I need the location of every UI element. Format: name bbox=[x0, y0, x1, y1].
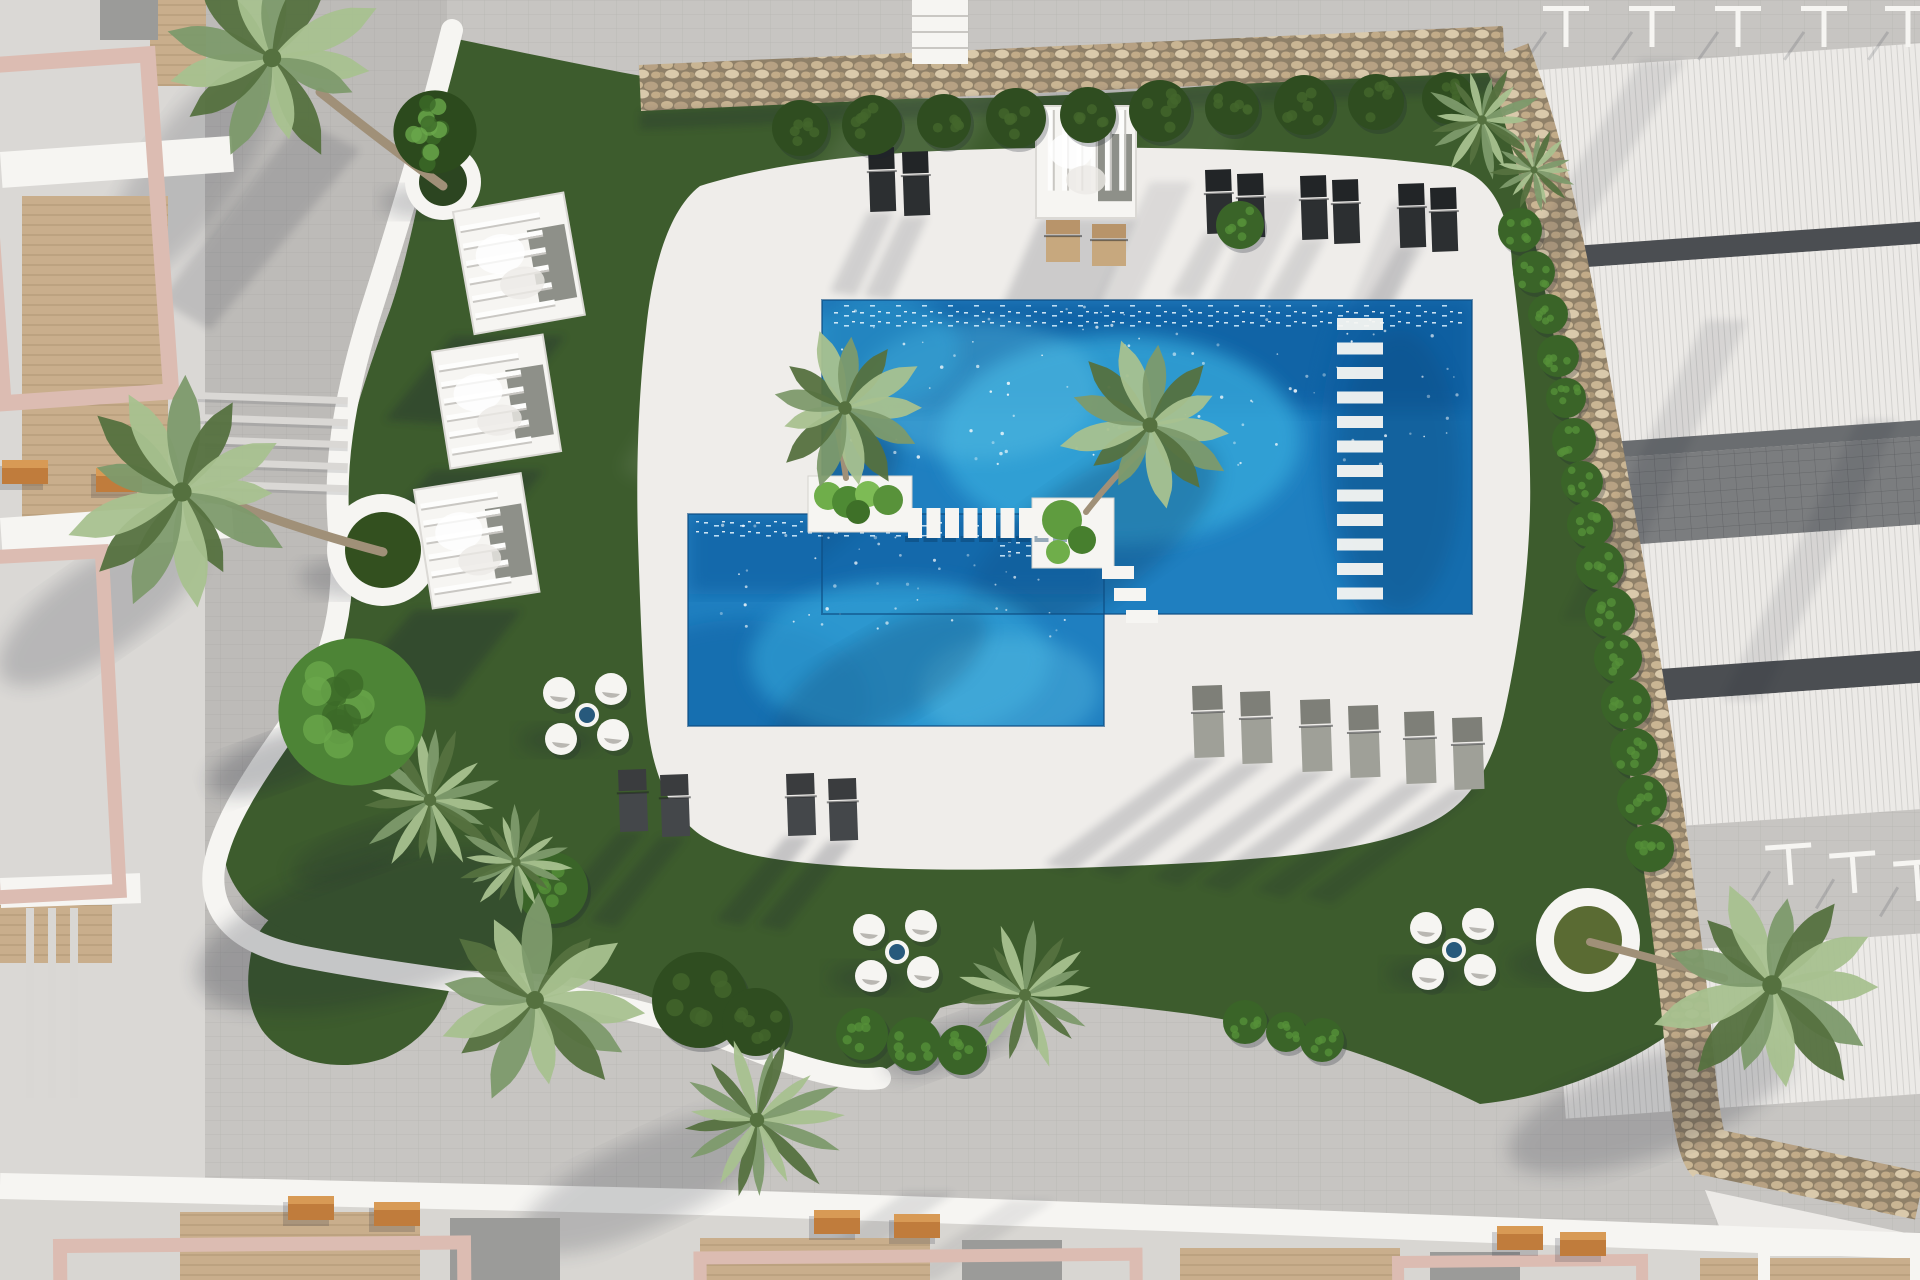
tree bbox=[278, 638, 425, 785]
pool-step bbox=[1337, 318, 1383, 330]
pergola bbox=[432, 334, 561, 468]
stepping-stone bbox=[964, 508, 978, 538]
stepping-stone bbox=[927, 508, 941, 538]
pool-step bbox=[1337, 441, 1383, 453]
terrace-recess bbox=[100, 0, 158, 40]
stepping-stone bbox=[1019, 508, 1033, 538]
sun-lounger bbox=[900, 151, 932, 216]
sun-lounger bbox=[1238, 691, 1274, 764]
top-stair bbox=[912, 0, 968, 64]
sun-lounger bbox=[1428, 187, 1460, 252]
sun-lounger bbox=[1190, 685, 1226, 758]
pool-step bbox=[1337, 343, 1383, 355]
pergola bbox=[414, 473, 539, 608]
sun-lounger bbox=[1396, 183, 1428, 248]
wood-bench bbox=[283, 1196, 334, 1226]
pool-step bbox=[1337, 367, 1383, 379]
sun-lounger bbox=[784, 773, 818, 836]
sun-lounger bbox=[1298, 175, 1330, 240]
sun-lounger bbox=[1450, 717, 1486, 790]
wood-bench bbox=[809, 1210, 860, 1240]
pool-step bbox=[1337, 416, 1383, 428]
pool-step bbox=[1337, 563, 1383, 575]
pool-step bbox=[1337, 514, 1383, 526]
wood-bench bbox=[1555, 1232, 1606, 1262]
wood-bench bbox=[889, 1214, 940, 1244]
stepping-stone bbox=[982, 508, 996, 538]
sun-lounger bbox=[1346, 705, 1382, 778]
pool-step bbox=[1337, 539, 1383, 551]
pergola bbox=[453, 193, 585, 335]
scene-canvas: Aerial 3D render of residential courtyar… bbox=[0, 0, 1920, 1280]
wood-bench bbox=[0, 460, 48, 490]
sun-lounger bbox=[658, 774, 692, 837]
wood-bench bbox=[1492, 1226, 1543, 1256]
pool-step bbox=[1337, 490, 1383, 502]
tree bbox=[393, 90, 476, 173]
wood-bench bbox=[369, 1202, 420, 1232]
pool-step bbox=[1337, 465, 1383, 477]
sun-lounger bbox=[1402, 711, 1438, 784]
stepping-stone bbox=[908, 508, 922, 538]
sun-lounger bbox=[1298, 699, 1334, 772]
stepping-stone bbox=[945, 508, 959, 538]
stepping-stone bbox=[1001, 508, 1015, 538]
sun-lounger bbox=[1044, 220, 1082, 262]
pool-step bbox=[1337, 392, 1383, 404]
sun-lounger bbox=[1330, 179, 1362, 244]
sun-lounger bbox=[616, 769, 650, 832]
sun-lounger bbox=[826, 778, 860, 841]
pool-step bbox=[1337, 588, 1383, 600]
sun-lounger bbox=[1090, 224, 1128, 266]
aerial-render: Aerial 3D render of residential courtyar… bbox=[0, 0, 1920, 1280]
